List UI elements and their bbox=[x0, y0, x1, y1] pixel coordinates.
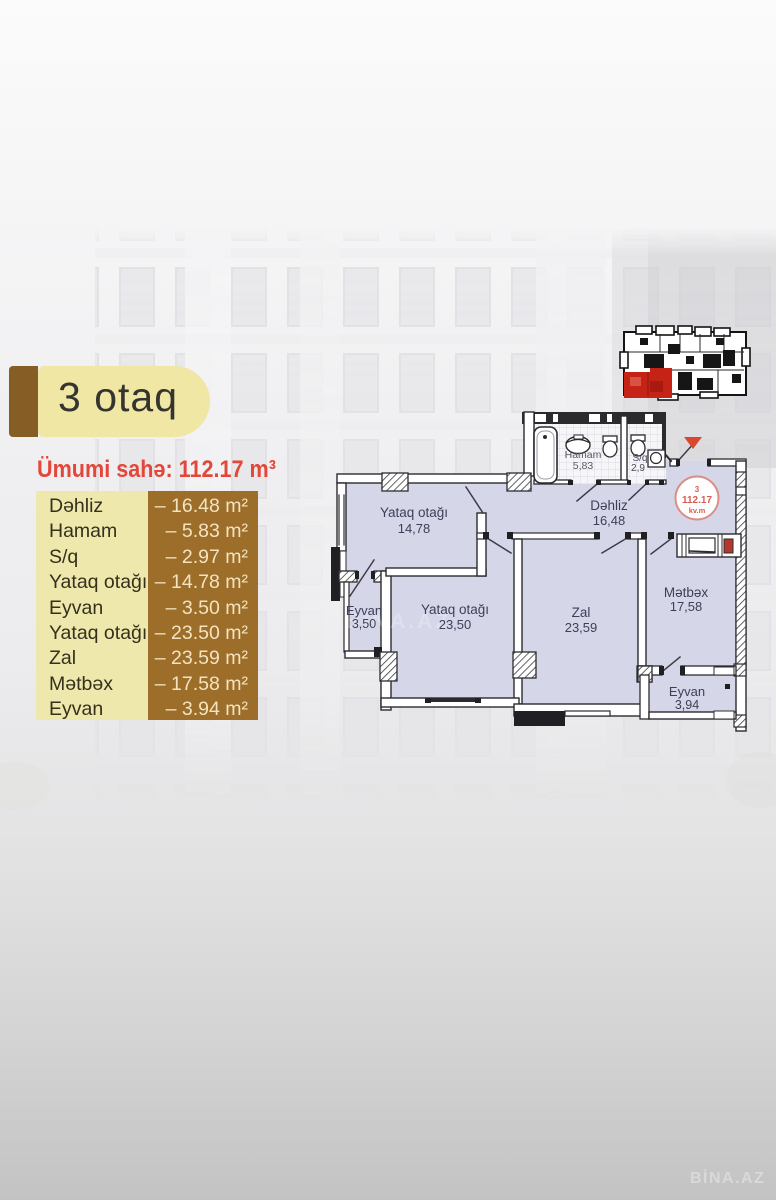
svg-text:Eyvan: Eyvan bbox=[669, 684, 705, 699]
svg-text:3,94: 3,94 bbox=[675, 698, 699, 712]
svg-text:2,9: 2,9 bbox=[631, 463, 645, 474]
svg-text:kv.m: kv.m bbox=[689, 506, 706, 515]
svg-text:Zal: Zal bbox=[572, 605, 591, 620]
svg-text:112.17: 112.17 bbox=[682, 495, 712, 506]
svg-text:23,50: 23,50 bbox=[439, 617, 472, 632]
svg-text:16,48: 16,48 bbox=[593, 513, 626, 528]
svg-text:Yataq otağı: Yataq otağı bbox=[421, 602, 489, 617]
svg-text:Yataq otağı: Yataq otağı bbox=[380, 505, 448, 520]
svg-text:Eyvan: Eyvan bbox=[346, 603, 382, 618]
svg-text:17,58: 17,58 bbox=[670, 599, 703, 614]
svg-text:Dəhliz: Dəhliz bbox=[590, 498, 628, 513]
svg-text:14,78: 14,78 bbox=[398, 521, 431, 536]
svg-text:23,59: 23,59 bbox=[565, 620, 598, 635]
svg-text:3,50: 3,50 bbox=[352, 617, 376, 631]
svg-text:5,83: 5,83 bbox=[573, 460, 594, 472]
svg-text:Mətbəx: Mətbəx bbox=[664, 585, 709, 600]
svg-text:3: 3 bbox=[695, 485, 700, 494]
